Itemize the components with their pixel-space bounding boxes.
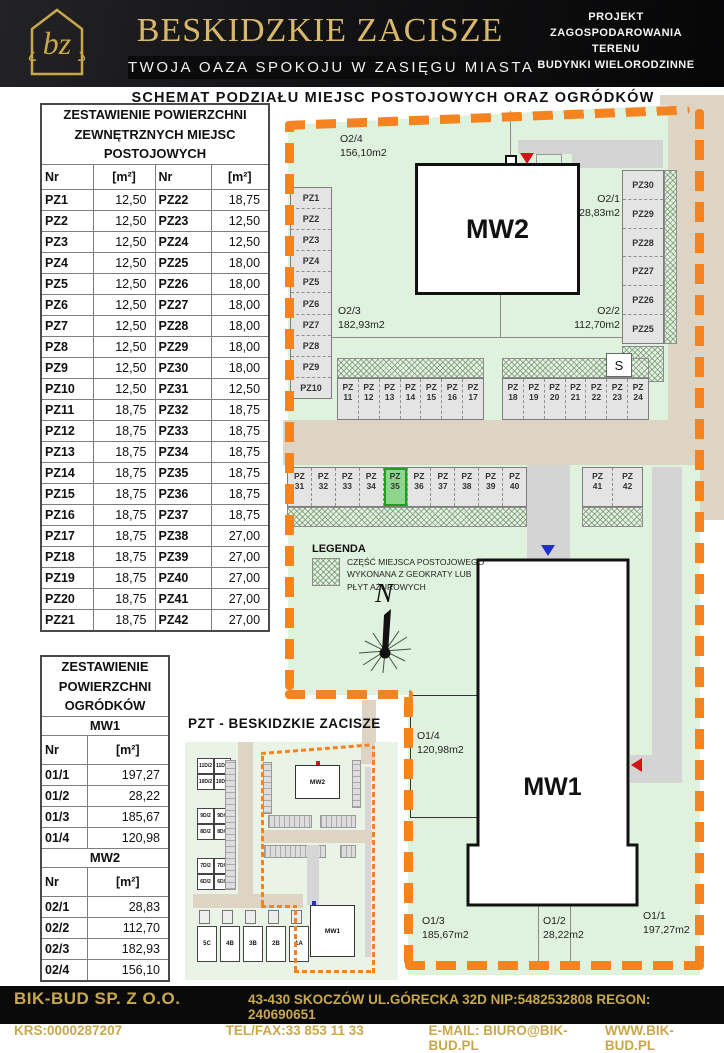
parking-stall-pz41: PZ 41 [583,468,613,506]
col-header: [m²] [93,164,155,189]
area-cell: 27,00 [211,588,269,609]
table-row: 01/4120,98 [41,827,169,848]
company-website: WWW.BIK-BUD.PL [605,1023,710,1053]
id-cell: PZ6 [41,294,93,315]
table-row: PZ412,50PZ2518,00 [41,252,269,273]
id-cell: 02/1 [41,896,87,917]
inset-plan: 11D/211D/110D/210D/1 9D/29D/18D/28D/1 7D… [185,742,398,980]
geogrid-strip [337,358,484,378]
table-row: 02/128,83 [41,896,169,917]
id-cell: PZ8 [41,336,93,357]
area-cell: 18,75 [93,609,155,631]
table-row: PZ1918,75PZ4027,00 [41,567,269,588]
inset-marker-red-icon [316,761,320,765]
id-cell: 01/2 [41,785,87,806]
area-cell: 28,22 [87,785,169,806]
area-cell: 18,75 [211,399,269,420]
table-row: PZ1718,75PZ3827,00 [41,525,269,546]
legend-line: CZĘŚĆ MIEJSCA POSTOJOWEGO [347,556,484,568]
inset-title: PZT - BESKIDZKIE ZACISZE [188,716,381,731]
parking-stall-pz23: PZ 23 [607,379,628,419]
boundary-dash-bottom [405,961,704,970]
area-cell: 197,27 [87,764,169,785]
table-row: PZ912,50PZ3018,00 [41,357,269,378]
col-header: Nr [41,164,93,189]
parking-stall-pz37: PZ 37 [431,468,455,506]
area-cell: 18,75 [211,441,269,462]
id-cell: PZ21 [41,609,93,631]
parking-stall-pz8: PZ8 [291,336,331,357]
garden-area: 197,27m2 [643,924,690,938]
id-cell: PZ13 [41,441,93,462]
company-logo-icon: bz [26,4,88,84]
inset-road-mid [261,830,372,843]
inset-house: 6D/2 [197,874,214,890]
garden-id: O2/4 [340,133,387,147]
parking-stall-pz20: PZ 20 [545,379,566,419]
inset-stalls [340,845,356,858]
inset-house: 8D/2 [197,824,214,840]
table-row: 01/3185,67 [41,806,169,827]
area-cell: 18,75 [93,399,155,420]
company-phone: TEL/FAX:33 853 11 33 [226,1023,429,1053]
parking-table-title: ZESTAWIENIE POWIERZCHNI ZEWNĘTRZNYCH MIE… [41,104,269,164]
company-address: 43-430 SKOCZÓW UL.GÓRECKA 32D NIP:548253… [248,992,710,1022]
id-cell: PZ37 [155,504,211,525]
id-cell: PZ5 [41,273,93,294]
col-header: [m²] [211,164,269,189]
garden-label: O2/2 112,70m2 [540,305,620,332]
brand-tagline: TWOJA OAZA SPOKOJU W ZASIĘGU MIASTA [128,56,512,79]
boundary-dash-notch-h [285,690,413,699]
garden-id: O1/3 [422,915,469,929]
parking-stall-pz5: PZ5 [291,272,331,293]
garden-id: O1/2 [543,915,584,929]
id-cell: PZ12 [41,420,93,441]
parking-stall-pz4: PZ4 [291,251,331,272]
inset-house: 7D/2 [197,858,214,874]
garden-id: O1/4 [417,730,464,744]
inset-boundary-bottom [294,970,375,973]
table-row: PZ112,50PZ2218,75 [41,189,269,210]
garden-area: 120,98m2 [417,744,464,758]
parking-stall-pz25: PZ25 [623,315,663,343]
garden-id: O2/2 [540,305,620,319]
company-krs: KRS:0000287207 [14,1023,226,1053]
table-row: 02/3182,93 [41,938,169,959]
id-cell: PZ20 [41,588,93,609]
area-cell: 18,00 [211,315,269,336]
id-cell: PZ34 [155,441,211,462]
id-cell: PZ23 [155,210,211,231]
table-row: PZ512,50PZ2618,00 [41,273,269,294]
id-cell: PZ36 [155,483,211,504]
area-cell: 18,00 [211,252,269,273]
area-cell: 18,75 [93,525,155,546]
inset-boundary-left [261,753,264,905]
geogrid-strip [287,507,527,527]
project-description: PROJEKTZAGOSPODAROWANIATERENUBUDYNKI WIE… [516,10,716,74]
parking-stall-pz28: PZ28 [623,229,663,258]
garden-area: 28,22m2 [543,929,584,943]
area-cell: 18,75 [93,420,155,441]
id-cell: PZ9 [41,357,93,378]
area-cell: 28,83 [87,896,169,917]
id-cell: PZ14 [41,462,93,483]
id-cell: 01/3 [41,806,87,827]
boundary-dash-right [695,109,704,966]
area-cell: 12,50 [93,273,155,294]
id-cell: PZ16 [41,504,93,525]
area-cell: 27,00 [211,567,269,588]
parking-stall-pz6: PZ6 [291,293,331,314]
col-header: Nr [155,164,211,189]
area-cell: 120,98 [87,827,169,848]
boundary-dash-notch-v [404,695,413,965]
area-cell: 12,50 [93,252,155,273]
id-cell: PZ39 [155,546,211,567]
parking-stall-pz11: PZ 11 [338,379,359,419]
parking-stall-pz21: PZ 21 [566,379,587,419]
id-cell: PZ29 [155,336,211,357]
area-cell: 12,50 [93,210,155,231]
trash-shelter-box: S [606,353,632,377]
id-cell: PZ32 [155,399,211,420]
area-cell: 18,75 [93,588,155,609]
table-row: 02/2112,70 [41,917,169,938]
page: { "colors":{"accent_orange":"#f5831f","g… [0,0,724,1024]
boundary-dash-left [285,125,294,690]
id-cell: PZ1 [41,189,93,210]
table-title-row: ZESTAWIENIE POWIERZCHNI OGRÓDKÓW [41,656,169,716]
inset-boundary-top [261,743,373,755]
area-cell: 12,50 [93,336,155,357]
parking-stall-pz29: PZ29 [623,200,663,229]
building-section-header: MW2 [41,848,169,867]
inset-garage [199,910,210,924]
inset-building-mw2: MW2 [295,765,340,799]
stall-row-18-24: PZ 18PZ 19PZ 20PZ 21PZ 22PZ 23PZ 24 [502,378,649,420]
parking-stall-pz34: PZ 34 [360,468,384,506]
inset-boundary-right [372,746,375,973]
inset-stalls [225,760,236,890]
parking-stall-pz40: PZ 40 [503,468,526,506]
garden-label: O2/3 182,93m2 [338,305,385,332]
area-cell: 185,67 [87,806,169,827]
table-row: PZ1618,75PZ3718,75 [41,504,269,525]
id-cell: 01/4 [41,827,87,848]
area-cell: 18,75 [93,441,155,462]
boundary-line [500,295,501,337]
garden-label: O1/2 28,22m2 [543,915,584,942]
id-cell: PZ7 [41,315,93,336]
col-header: Nr [41,735,87,764]
id-cell: PZ18 [41,546,93,567]
table-row: PZ2118,75PZ4227,00 [41,609,269,631]
walkway-top2 [572,154,663,168]
area-cell: 18,75 [211,483,269,504]
inset-garage [245,910,256,924]
table-row: PZ1418,75PZ3518,75 [41,462,269,483]
stall-column-right: PZ30PZ29PZ28PZ27PZ26PZ25 [622,170,664,344]
parking-stall-pz39: PZ 39 [479,468,503,506]
garden-table-title: ZESTAWIENIE POWIERZCHNI OGRÓDKÓW [41,656,169,716]
garden-area: 28,83m2 [572,207,620,221]
legend-title: LEGENDA [312,543,366,555]
inset-house: 1A [289,926,309,962]
inset-house: 10D/2 [197,774,214,790]
id-cell: PZ35 [155,462,211,483]
boundary-line [538,905,539,962]
building-mw2: MW2 [415,163,580,295]
parking-stall-pz19: PZ 19 [524,379,545,419]
col-header: Nr [41,867,87,896]
area-cell: 18,75 [211,462,269,483]
id-cell: PZ25 [155,252,211,273]
inset-road-v [238,742,253,902]
walkway-right [652,467,682,765]
parking-stall-pz2: PZ2 [291,209,331,230]
entrance-marker-red-icon [631,758,642,772]
logo-text: bz [43,25,72,61]
parking-stall-pz12: PZ 12 [359,379,380,419]
geogrid-strip [664,170,677,344]
inset-stalls [268,815,312,828]
id-cell: 02/2 [41,917,87,938]
id-cell: PZ22 [155,189,211,210]
parking-stall-pz14: PZ 14 [401,379,422,419]
header-bar: bz BESKIDZKIE ZACISZE TWOJA OAZA SPOKOJU… [0,0,724,87]
parking-stall-pz30: PZ30 [623,171,663,200]
geogrid-strip [582,507,643,527]
stall-row-41-42: PZ 41PZ 42 [582,467,643,507]
garden-label: O2/4 156,10m2 [340,133,387,160]
area-cell: 18,75 [93,546,155,567]
table-row: PZ1818,75PZ3927,00 [41,546,269,567]
inset-house: 4B [220,926,240,962]
parking-stall-pz7: PZ7 [291,315,331,336]
garden-id: O2/1 [572,193,620,207]
id-cell: PZ26 [155,273,211,294]
stall-column-left: PZ1PZ2PZ3PZ4PZ5PZ6PZ7PZ8PZ9PZ10 [290,187,332,399]
brand-title: BESKIDZKIE ZACISZE [120,12,520,50]
garden-id: O2/3 [338,305,385,319]
table-row: PZ812,50PZ2918,00 [41,336,269,357]
parking-stall-pz13: PZ 13 [380,379,401,419]
inset-house: 5C [197,926,217,962]
id-cell: PZ33 [155,420,211,441]
inset-driveway [307,845,319,905]
inset-garage [268,910,279,924]
area-cell: 12,50 [93,189,155,210]
garden-label: O2/1 28,83m2 [572,193,620,220]
id-cell: PZ10 [41,378,93,399]
project-description-line: BUDYNKI WIELORODZINNE [516,58,716,74]
area-cell: 12,50 [93,378,155,399]
area-cell: 12,50 [93,315,155,336]
garden-label: O1/1 197,27m2 [643,910,690,937]
garden-label: O1/4 120,98m2 [417,730,464,757]
stall-row-11-17: PZ 11PZ 12PZ 13PZ 14PZ 15PZ 16PZ 17 [337,378,484,420]
inset-boundary-notch-h [261,905,297,908]
inset-walkway [365,767,371,957]
area-cell: 18,75 [211,189,269,210]
id-cell: PZ28 [155,315,211,336]
area-cell: 18,75 [93,504,155,525]
parking-stall-pz17: PZ 17 [463,379,483,419]
project-description-line: PROJEKT [516,10,716,26]
parking-stall-pz32: PZ 32 [312,468,336,506]
table-row: PZ712,50PZ2818,00 [41,315,269,336]
parking-area-table: ZESTAWIENIE POWIERZCHNI ZEWNĘTRZNYCH MIE… [40,103,270,632]
id-cell: PZ24 [155,231,211,252]
area-cell: 12,50 [93,294,155,315]
area-cell: 18,00 [211,273,269,294]
inset-boundary-notch-v [294,905,297,971]
garden-area: 182,93m2 [338,319,385,333]
parking-stall-pz24: PZ 24 [628,379,648,419]
parking-stall-pz10: PZ10 [291,378,331,398]
parking-stall-pz26: PZ26 [623,286,663,315]
col-header: [m²] [87,735,169,764]
project-description-line: ZAGOSPODAROWANIA [516,26,716,42]
inset-house: 9D/2 [197,808,214,824]
id-cell: PZ40 [155,567,211,588]
table-row: 01/1197,27 [41,764,169,785]
table-row: PZ1012,50PZ3112,50 [41,378,269,399]
parking-stall-pz36: PZ 36 [408,468,432,506]
garden-label: O1/3 185,67m2 [422,915,469,942]
area-cell: 182,93 [87,938,169,959]
area-cell: 18,75 [93,483,155,504]
footer-bar: BIK-BUD SP. Z O.O. 43-430 SKOCZÓW UL.GÓR… [0,986,724,1024]
id-cell: PZ19 [41,567,93,588]
parking-stall-pz27: PZ27 [623,257,663,286]
area-cell: 18,00 [211,357,269,378]
parking-stall-pz42: PZ 42 [613,468,642,506]
parking-stall-pz15: PZ 15 [421,379,442,419]
parking-stall-pz35: PZ 35 [384,468,408,506]
inset-stalls [263,762,272,814]
parking-stall-pz16: PZ 16 [442,379,463,419]
area-cell: 18,00 [211,336,269,357]
inset-building-mw1: MW1 [310,905,355,957]
area-cell: 18,75 [93,462,155,483]
legend-line: WYKONANA Z GEOKRATY LUB [347,568,484,580]
table-title-row: ZESTAWIENIE POWIERZCHNI ZEWNĘTRZNYCH MIE… [41,104,269,164]
building-mw1-outline [465,557,640,909]
company-name: BIK-BUD SP. Z O.O. [14,989,248,1009]
garden-area-table: ZESTAWIENIE POWIERZCHNI OGRÓDKÓW MW1Nr[m… [40,655,170,982]
id-cell: PZ15 [41,483,93,504]
parking-stall-pz22: PZ 22 [586,379,607,419]
table-row: PZ1518,75PZ3618,75 [41,483,269,504]
parking-stall-pz1: PZ1 [291,188,331,209]
table-row: 02/4156,10 [41,959,169,981]
legend-swatch [312,558,340,586]
inset-house: 11D/2 [197,758,214,774]
inset-stalls [352,760,361,808]
entrance-marker-red-icon [520,153,534,164]
id-cell: PZ38 [155,525,211,546]
north-arrow-icon [353,607,419,681]
boundary-line [332,337,643,338]
north-label: N [375,578,393,609]
parking-stall-pz3: PZ3 [291,230,331,251]
area-cell: 12,50 [211,378,269,399]
area-cell: 156,10 [87,959,169,981]
id-cell: PZ30 [155,357,211,378]
entrance-marker-blue-icon [541,545,555,556]
id-cell: PZ41 [155,588,211,609]
id-cell: PZ3 [41,231,93,252]
area-cell: 18,75 [211,420,269,441]
inset-marker-blue-icon [312,901,316,905]
area-cell: 27,00 [211,525,269,546]
id-cell: PZ4 [41,252,93,273]
stall-row-31-40: PZ 31PZ 32PZ 33PZ 34PZ 35PZ 36PZ 37PZ 38… [287,467,527,507]
table-row: PZ1318,75PZ3418,75 [41,441,269,462]
id-cell: PZ31 [155,378,211,399]
area-cell: 18,00 [211,294,269,315]
area-cell: 18,75 [211,504,269,525]
id-cell: PZ11 [41,399,93,420]
garden-area: 156,10m2 [340,147,387,161]
area-cell: 27,00 [211,546,269,567]
table-row: PZ1118,75PZ3218,75 [41,399,269,420]
building-section-header: MW1 [41,716,169,735]
area-cell: 27,00 [211,609,269,631]
table-header-row: Nr [m²] Nr [m²] [41,164,269,189]
inset-house: 2B [266,926,286,962]
garden-area: 112,70m2 [540,319,620,333]
garden-area: 185,67m2 [422,929,469,943]
table-row: PZ312,50PZ2412,50 [41,231,269,252]
parking-stall-pz33: PZ 33 [336,468,360,506]
legend-text: CZĘŚĆ MIEJSCA POSTOJOWEGOWYKONANA Z GEOK… [347,556,484,593]
table-row: PZ612,50PZ2718,00 [41,294,269,315]
id-cell: PZ42 [155,609,211,631]
area-cell: 18,75 [93,567,155,588]
inset-house: 3B [243,926,263,962]
id-cell: 01/1 [41,764,87,785]
table-row: PZ212,50PZ2312,50 [41,210,269,231]
company-email: E-MAIL: BIURO@BIK-BUD.PL [428,1023,604,1053]
table-row: PZ2018,75PZ4127,00 [41,588,269,609]
table-row: PZ1218,75PZ3318,75 [41,420,269,441]
id-cell: PZ17 [41,525,93,546]
road-middle [283,420,724,465]
id-cell: 02/3 [41,938,87,959]
legend-line: PŁYT AŻUROWYCH [347,581,484,593]
area-cell: 12,50 [211,231,269,252]
garden-id: O1/1 [643,910,690,924]
id-cell: PZ2 [41,210,93,231]
id-cell: 02/4 [41,959,87,981]
inset-garage [222,910,233,924]
parking-stall-pz38: PZ 38 [455,468,479,506]
project-description-line: TERENU [516,42,716,58]
parking-stall-pz18: PZ 18 [503,379,524,419]
area-cell: 12,50 [93,231,155,252]
col-header: [m²] [87,867,169,896]
id-cell: PZ27 [155,294,211,315]
table-row: 01/228,22 [41,785,169,806]
area-cell: 112,70 [87,917,169,938]
building-mw1-label: MW1 [465,773,640,802]
area-cell: 12,50 [93,357,155,378]
inset-stalls [320,815,356,828]
